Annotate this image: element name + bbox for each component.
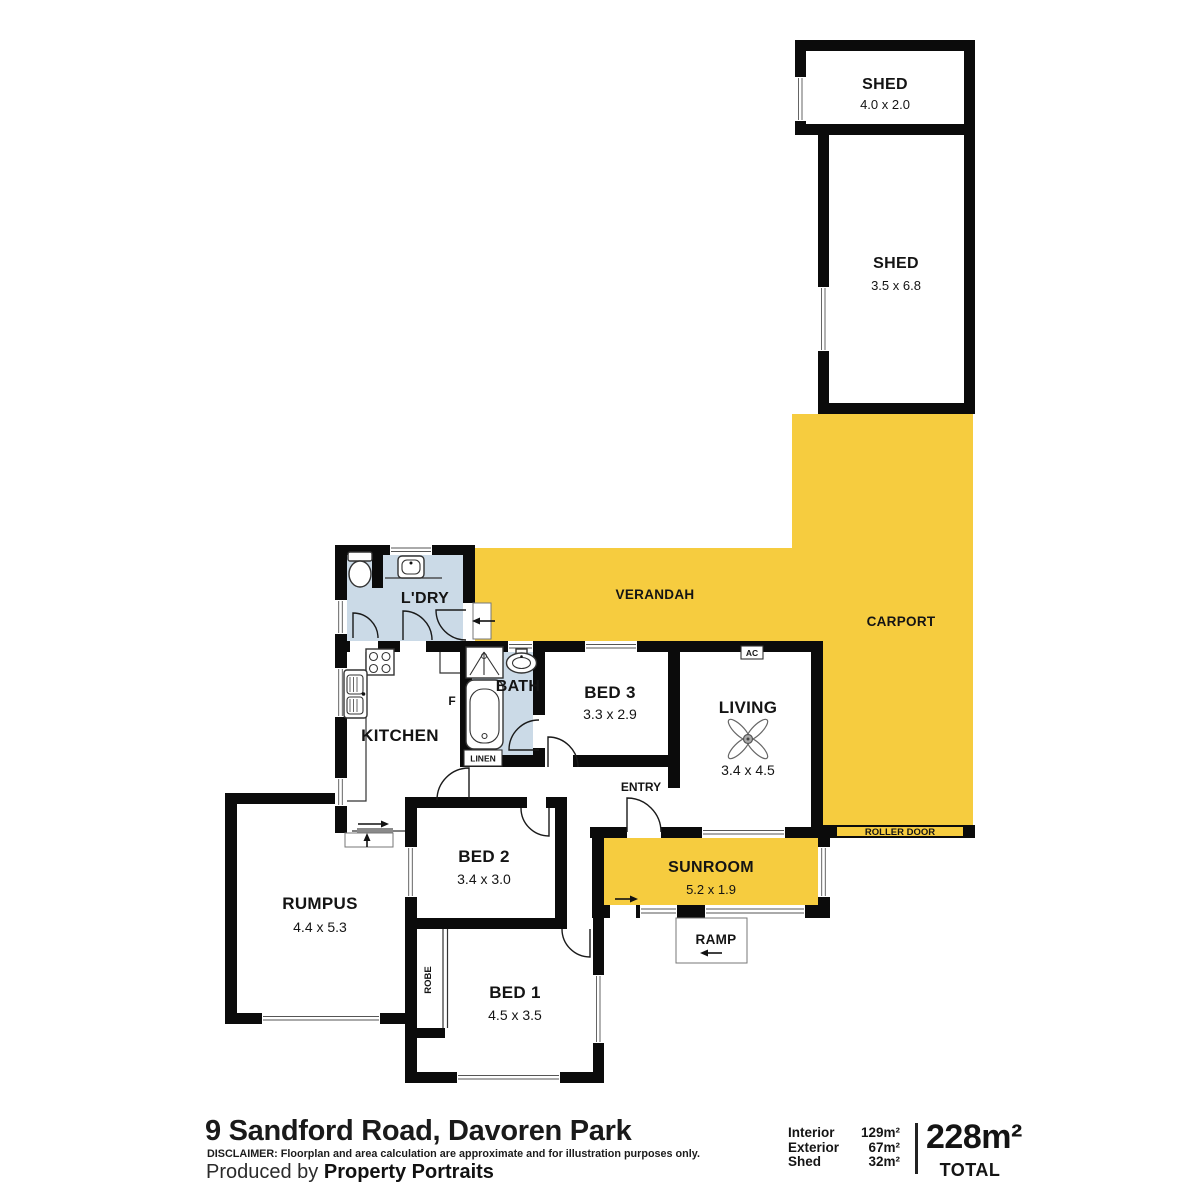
produced-by: Produced by Property Portraits [206,1161,494,1184]
room-label-kitchen: KITCHEN [361,726,439,745]
kitchen-sink-icon [344,670,367,718]
linen-label: LINEN [470,754,496,764]
total-area-value: 228m² [926,1118,1014,1157]
robe-sliding-doors [443,929,448,1028]
bed1-door [562,929,590,957]
laundry-trough-icon [398,556,424,578]
area-summary: Interior 129m² Exterior 67m² Shed 32m² [788,1126,900,1170]
bed2-door [521,808,549,836]
room-label-verandah: VERANDAH [616,587,695,602]
total-area-label: TOTAL [926,1160,1014,1181]
area-label: Exterior [788,1141,850,1156]
room-label-sunroom: SUNROOM [668,859,754,876]
robe-label: ROBE [423,966,434,993]
room-dims-bed1: 4.5 x 3.5 [488,1007,542,1023]
ac-label: AC [746,648,758,658]
producer-name: Property Portraits [324,1161,494,1183]
disclaimer: DISCLAIMER: Floorplan and area calculati… [207,1148,700,1160]
air-conditioner: AC [741,646,763,659]
room-dims-shed-top: 4.0 x 2.0 [860,97,910,112]
property-address: 9 Sandford Road, Davoren Park [205,1115,631,1148]
room-dims-living: 3.4 x 4.5 [721,762,775,778]
room-label-bed2: BED 2 [458,847,510,866]
room-label-shed-main: SHED [873,255,919,272]
room-label-laundry: L'DRY [401,590,449,607]
room-label-carport: CARPORT [867,614,936,629]
rumpus-door [437,768,469,800]
produced-by-text: Produced by [206,1161,324,1183]
linen-cupboard: LINEN [464,750,502,766]
area-label: Interior [788,1126,850,1141]
disclaimer-text: Floorplan and area calculation are appro… [278,1148,700,1160]
room-dims-bed2: 3.4 x 3.0 [457,871,511,887]
ramp-label: RAMP [696,932,737,947]
stove-icon [366,649,394,675]
total-area: 228m² TOTAL [926,1118,1014,1181]
area-value: 67m² [850,1141,900,1156]
room-label-rumpus: RUMPUS [282,894,357,913]
room-label-bed1: BED 1 [489,983,541,1002]
area-value: 129m² [850,1126,900,1141]
area-row-shed: Shed 32m² [788,1155,900,1170]
toilet-icon [348,552,372,587]
room-dims-bed3: 3.3 x 2.9 [583,706,637,722]
floorplan-canvas: ROLLER DOOR [0,0,1200,1200]
footer-divider [915,1123,918,1174]
area-row-exterior: Exterior 67m² [788,1141,900,1156]
area-row-interior: Interior 129m² [788,1126,900,1141]
room-dims-sunroom: 5.2 x 1.9 [686,882,736,897]
room-label-bed3: BED 3 [584,683,636,702]
room-dims-shed-main: 3.5 x 6.8 [871,278,921,293]
ramp: RAMP [676,918,747,963]
entry-door [627,798,661,832]
rumpus-step-bar [357,828,393,833]
disclaimer-label: DISCLAIMER: [207,1148,278,1160]
ceiling-fan-icon [726,717,771,762]
roller-door-label: ROLLER DOOR [865,827,935,838]
entry-label: ENTRY [621,780,661,794]
room-dims-rumpus: 4.4 x 5.3 [293,919,347,935]
room-label-bath: BATH [496,678,540,695]
area-label: Shed [788,1155,850,1170]
room-label-shed-top: SHED [862,76,908,93]
shower-icon [466,647,503,678]
fridge-label: F [448,694,455,708]
area-value: 32m² [850,1155,900,1170]
room-label-living: LIVING [719,698,777,717]
